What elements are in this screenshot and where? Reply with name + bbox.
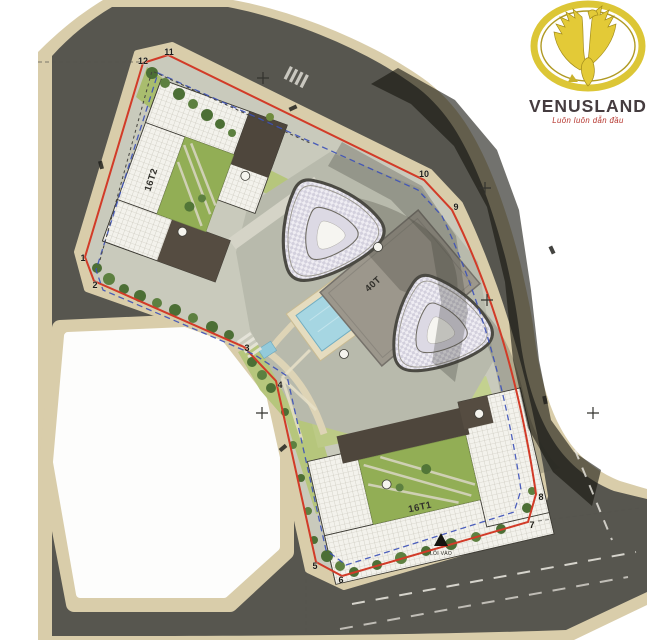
svg-text:6: 6 [338, 575, 343, 585]
svg-text:12: 12 [138, 56, 148, 66]
keynote-marker [374, 243, 383, 252]
keynote-marker [340, 350, 349, 359]
svg-text:2: 2 [92, 280, 97, 290]
svg-text:3: 3 [244, 343, 249, 353]
svg-text:7: 7 [529, 520, 534, 530]
venusland-logo: VENUSLAND Luôn luôn dẫn đầu [529, 4, 647, 125]
svg-text:9: 9 [453, 202, 458, 212]
svg-text:10: 10 [419, 169, 429, 179]
site-plan-canvas: LỐI VÀO 16T2 16T1 40T 1 2 3 4 5 6 7 8 9 … [0, 0, 647, 640]
svg-text:1: 1 [80, 253, 85, 263]
logo-brand-text: VENUSLAND [529, 96, 647, 116]
svg-text:4: 4 [277, 380, 282, 390]
svg-text:5: 5 [312, 561, 317, 571]
master-plan-drawing: LỐI VÀO 16T2 16T1 40T 1 2 3 4 5 6 7 8 9 … [0, 0, 647, 640]
entrance-label: LỐI VÀO [430, 550, 452, 557]
parcel-ground [57, 330, 276, 594]
svg-text:11: 11 [164, 47, 174, 57]
svg-text:8: 8 [538, 492, 543, 502]
logo-tagline-text: Luôn luôn dẫn đầu [552, 116, 624, 125]
eagle-emblem-icon [534, 4, 642, 88]
